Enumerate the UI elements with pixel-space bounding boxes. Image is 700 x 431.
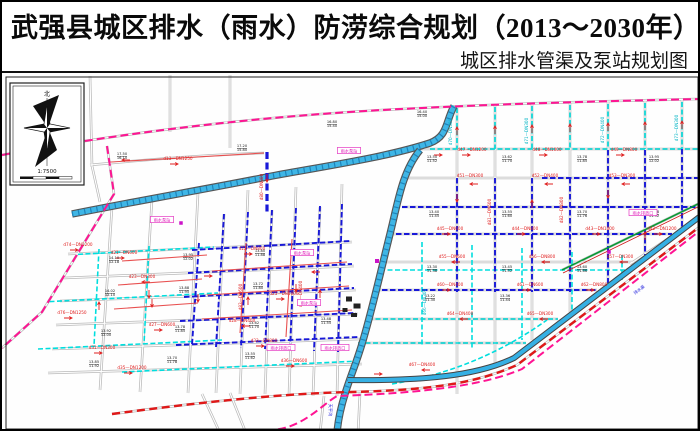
pipe-label: d61—DN600: [517, 282, 544, 287]
elevation-label: 16.4015.00: [417, 110, 428, 118]
pipe-label: d49—DN800: [611, 147, 638, 152]
pipe-label: d43—DN1000: [585, 226, 615, 231]
pipe-label: d47—DN1200: [457, 147, 487, 152]
pipe-label-vertical: d80—DN800: [259, 173, 264, 200]
pump-station-symbol: [375, 259, 379, 263]
pipe-label: d25—DN1000: [269, 291, 299, 296]
pipe-label: d23—DN300: [129, 274, 156, 279]
pipe-label: d35—DN1200: [117, 365, 147, 370]
pipe-label: d42—DN1200: [647, 226, 677, 231]
pipe-label: d51—DN300: [457, 173, 484, 178]
pump-station-symbol: [179, 221, 183, 225]
drawing-title: 武强县城区排水（雨水）防涝综合规划（2013～2030年）: [11, 6, 700, 45]
pipe-label-vertical: d83—DN600: [238, 283, 243, 310]
pipe-label: d13—DN1250: [163, 156, 193, 161]
pipe-label: d53—DN300: [609, 173, 636, 178]
elevation-label: 16.8015.40: [327, 120, 338, 128]
pipe-label: d65—DN300: [527, 311, 554, 316]
pump-station-label: 雨水排放口: [271, 344, 292, 351]
north-label: 北: [44, 90, 50, 98]
pipe-label: d45—DN600: [437, 226, 464, 231]
pipe-label-vertical: d73—DN300: [674, 114, 679, 141]
plan-map: 北 1:7500 d47—DN1200d48—DN1000d49—DN800d5…: [2, 73, 700, 431]
pipe-label: d27—DN600: [149, 322, 176, 327]
scale-text: 1:7500: [37, 169, 57, 175]
pipe-label: d36—DN600: [281, 358, 308, 363]
pipe-label: d60—DN400: [437, 282, 464, 287]
compass-box: 北 1:7500: [10, 83, 84, 185]
pump-station-label: 雨水排放口: [325, 344, 346, 351]
pipe-label: d48—DN1000: [532, 147, 562, 152]
pipe-label: d21—DN600: [111, 250, 138, 255]
pipe-label: d56—DN800: [529, 254, 556, 259]
building-footprint: [354, 304, 361, 309]
pipe-label: d74—DN1200: [63, 242, 93, 247]
pump-station-label: 雨水排放口: [633, 209, 654, 216]
pump-station-label: 雨水泵站: [301, 299, 318, 306]
pipe-label: d76—DN1250: [57, 310, 87, 315]
pipe-label: d57—DN300: [607, 254, 634, 259]
pipe-label-vertical: d70—DN300: [448, 118, 453, 145]
building-footprint: [346, 297, 352, 302]
pipe-label: d62—DN800: [581, 282, 608, 287]
pipe-label: d44—DN800: [512, 226, 539, 231]
scale-bar: [20, 177, 72, 180]
pipe-label: d33—DN800: [251, 338, 278, 343]
pipe-label-vertical: d82—DN800: [559, 196, 564, 223]
drawing-sheet: 武强县城区排水（雨水）防涝综合规划（2013～2030年） 城区排水管渠及泵站规…: [0, 0, 700, 431]
pump-station-label: 雨水泵站: [294, 249, 311, 256]
building-footprint: [351, 313, 357, 317]
pipe-label: d31—DN300: [89, 345, 116, 350]
pipe-label: d52—DN400: [532, 173, 559, 178]
building-footprint: [343, 308, 348, 312]
pump-station-label: 雨水泵站: [341, 147, 358, 154]
pipe-label: d64—DN400: [447, 311, 474, 316]
waterway-label: 天平沟: [327, 404, 334, 417]
pipe-label: d55—DN600: [439, 254, 466, 259]
pipe-label-vertical: d72—DN400: [600, 116, 605, 143]
title-block: 武强县城区排水（雨水）防涝综合规划（2013～2030年） 城区排水管渠及泵站规…: [2, 2, 698, 73]
drawing-subtitle: 城区排水管渠及泵站规划图: [460, 46, 688, 73]
pipe-label-vertical: d81—DN600: [487, 198, 492, 225]
pipe-label: d67—DN400: [409, 362, 436, 367]
pipe-label-vertical: d71—DN300: [524, 117, 529, 144]
map-canvas: 北 1:7500 d47—DN1200d48—DN1000d49—DN800d5…: [2, 73, 700, 431]
pump-station-label: 雨水泵站: [154, 216, 171, 223]
pump-station-symbol: [607, 250, 611, 254]
